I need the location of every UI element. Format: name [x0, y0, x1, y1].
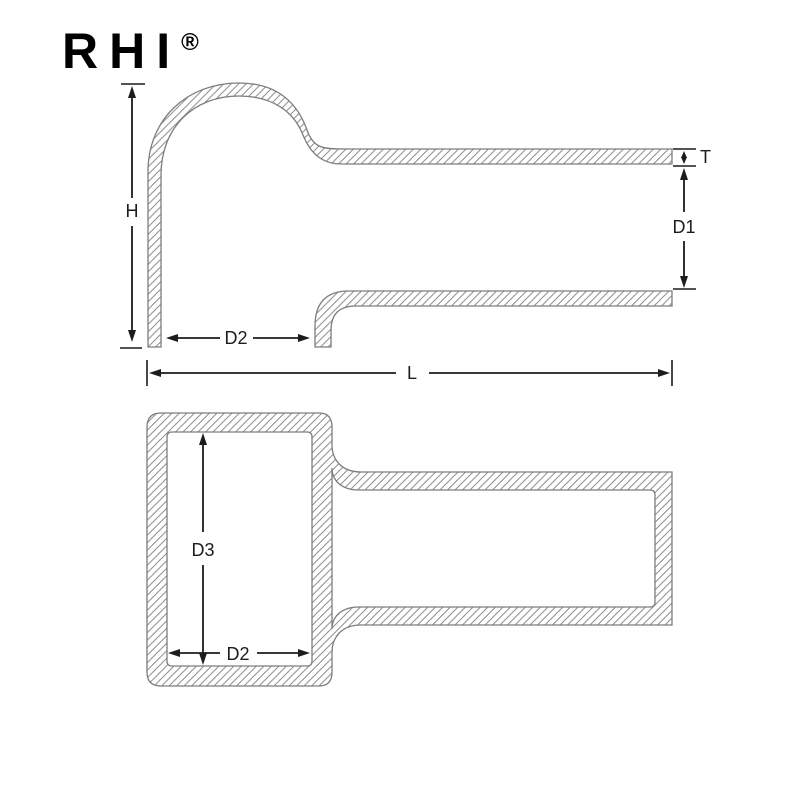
dim-label-d1: D1	[672, 217, 695, 237]
dim-label-l: L	[407, 363, 417, 383]
dimension-t: T	[673, 147, 711, 167]
dimension-d3: D3	[191, 433, 214, 665]
dim-label-h: H	[126, 201, 139, 221]
dim-label-d3: D3	[191, 540, 214, 560]
plan-section-view: D3 D2	[147, 413, 672, 686]
dim-label-d2-plan: D2	[226, 644, 249, 664]
dimension-d1: D1	[672, 168, 696, 289]
dim-label-t: T	[700, 147, 711, 167]
technical-drawing-page: RHI® H	[0, 0, 800, 800]
cap-dimension-drawing: H T D1 D2	[0, 0, 800, 800]
dimension-d2-side: D2	[166, 328, 310, 348]
dim-label-d2-side: D2	[224, 328, 247, 348]
dimension-d2-plan: D2	[168, 644, 310, 664]
side-section-view: H T D1 D2	[120, 83, 711, 386]
side-view-dome-and-top-wall	[148, 83, 672, 347]
dimension-h: H	[120, 84, 145, 348]
side-view-bottom-wall	[315, 291, 672, 347]
dimension-l: L	[147, 360, 672, 386]
